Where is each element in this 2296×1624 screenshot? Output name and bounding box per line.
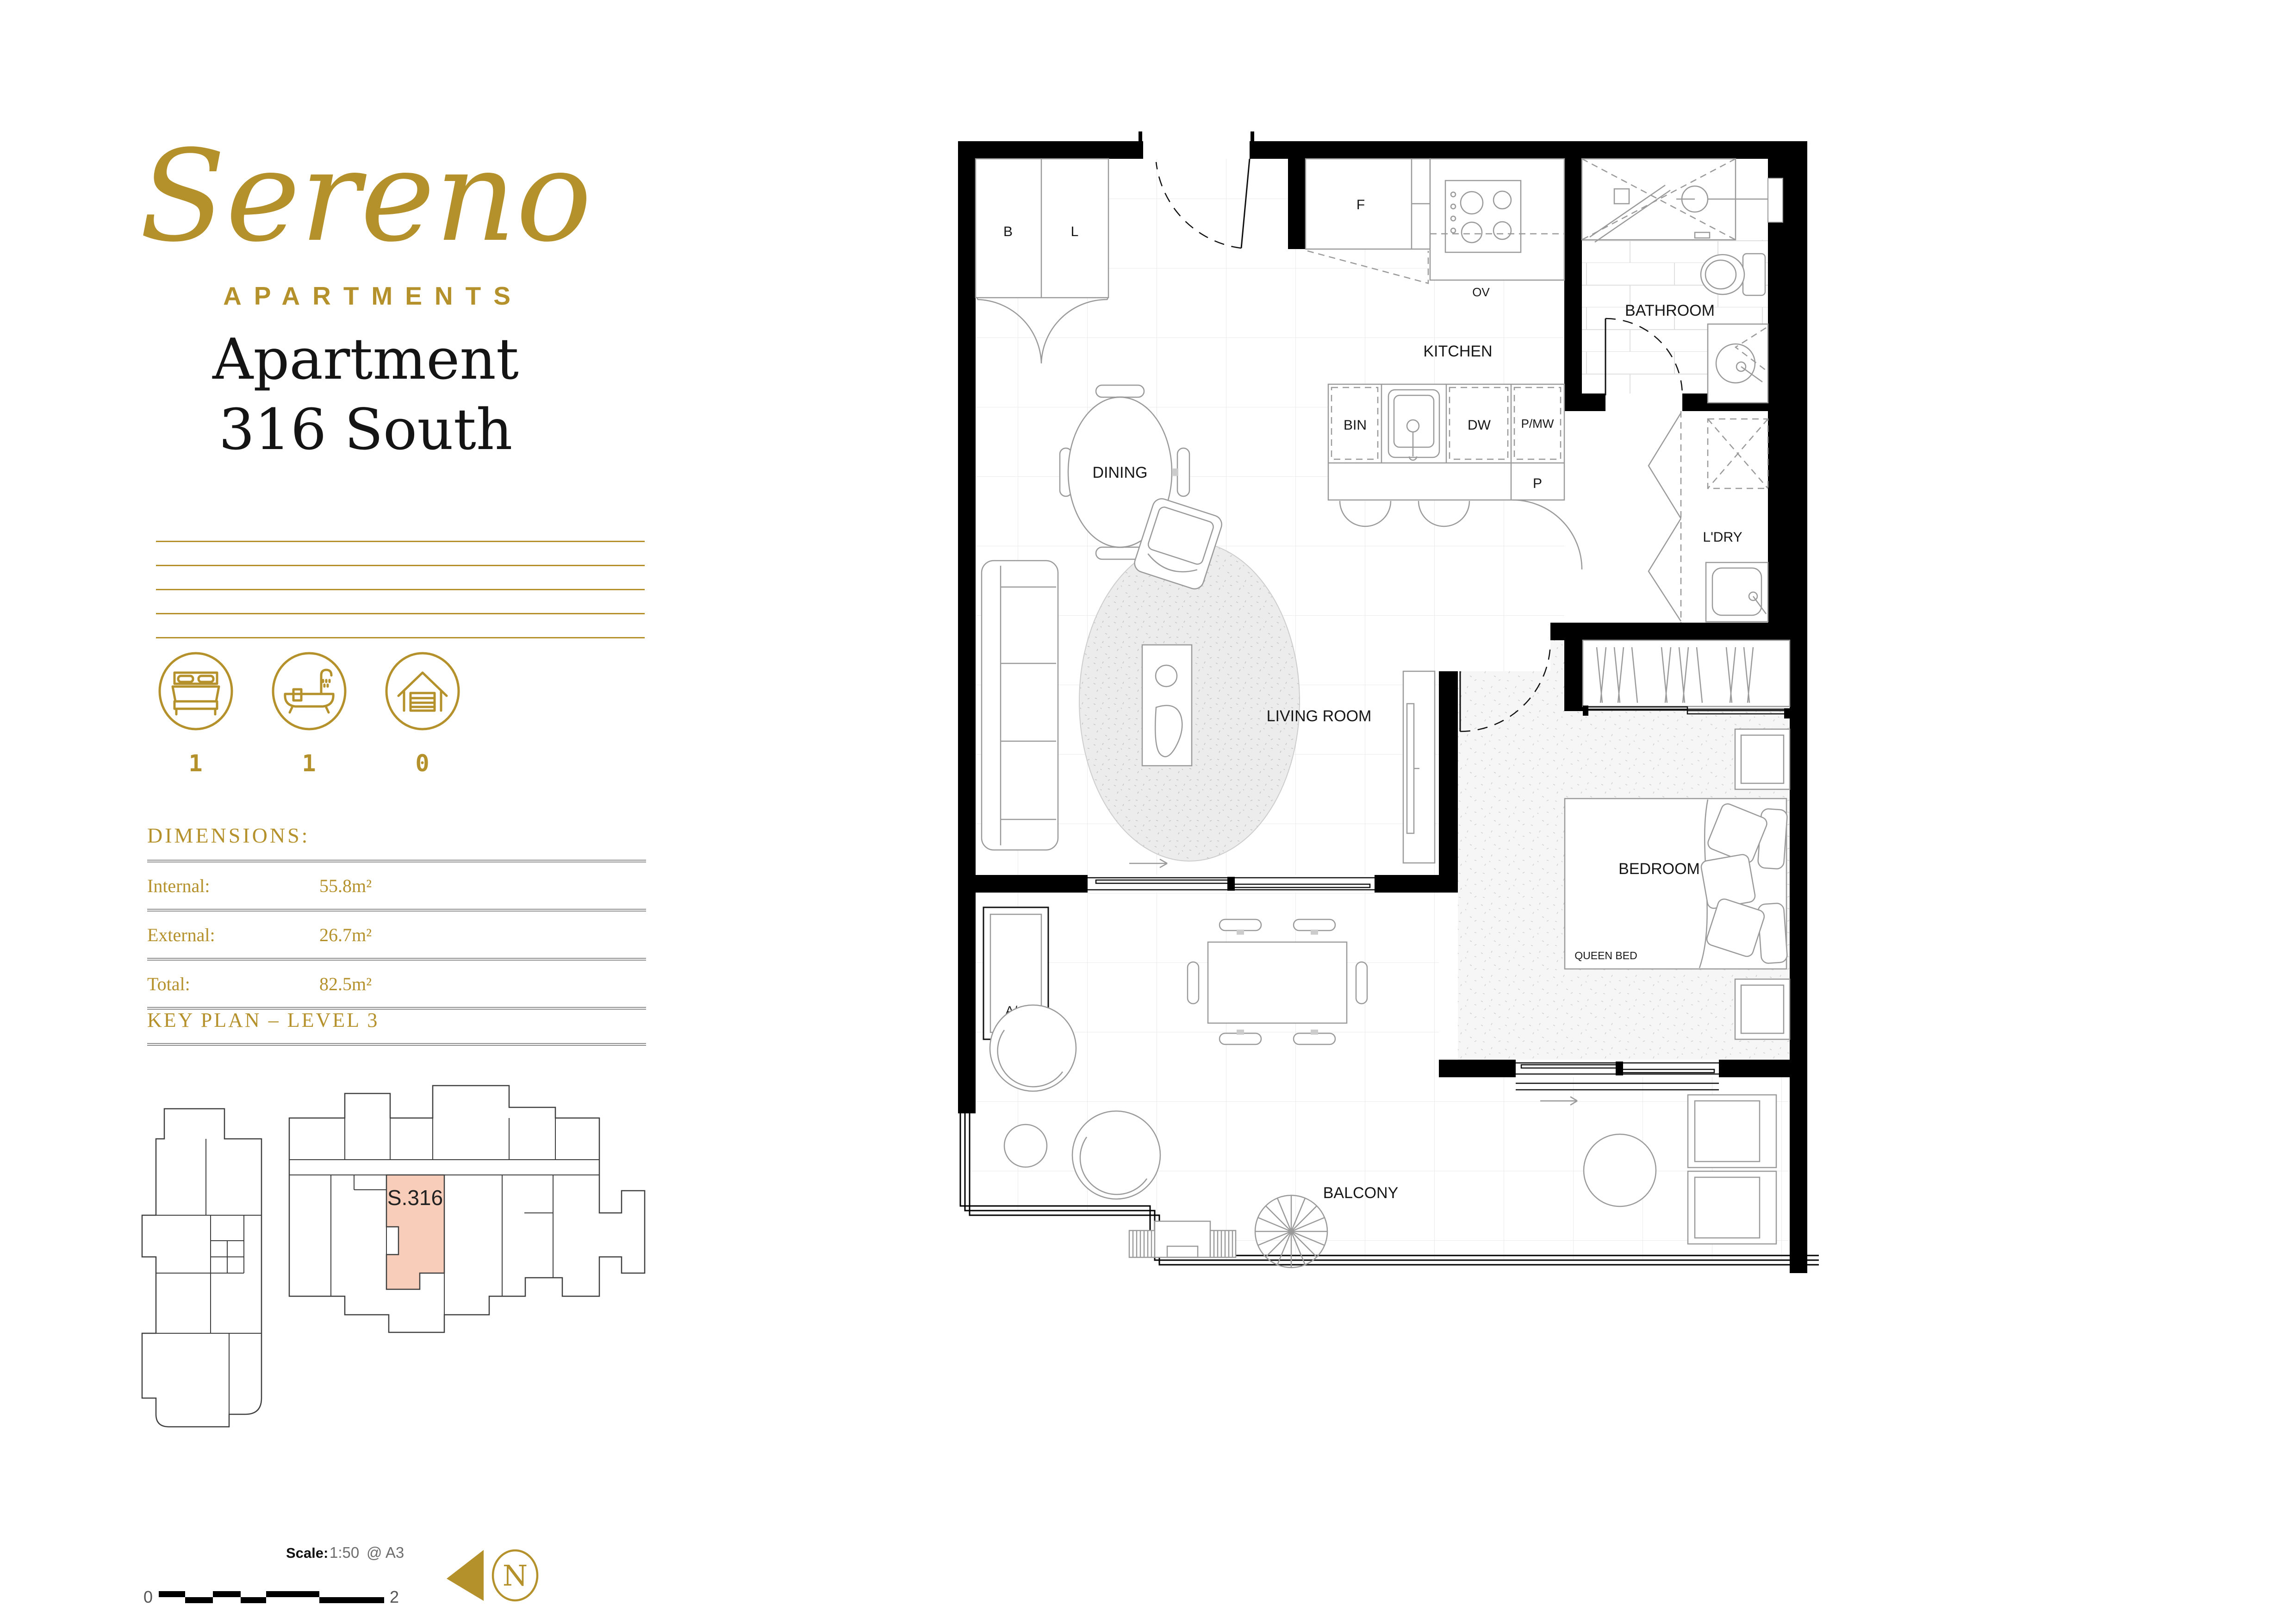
svg-text:0: 0 bbox=[143, 1587, 153, 1606]
outdoor-table bbox=[1584, 1134, 1656, 1206]
keyplan-heading: KEY PLAN – LEVEL 3 bbox=[147, 1008, 646, 1032]
garage-count: 0 bbox=[366, 750, 479, 777]
north-indicator: N bbox=[447, 1550, 537, 1601]
sofa bbox=[982, 561, 1058, 850]
dim-row-internal: Internal: 55.8m² bbox=[147, 862, 646, 909]
kitchen-label: KITCHEN bbox=[1423, 343, 1492, 360]
laundry-tub bbox=[1706, 562, 1768, 622]
dim-row-external: External: 26.7m² bbox=[147, 912, 646, 958]
queen-bed: BEDROOM QUEEN BED bbox=[1565, 799, 1787, 969]
planter bbox=[1688, 1095, 1776, 1168]
svg-text:L'DRY: L'DRY bbox=[1703, 530, 1742, 545]
bathroom-window bbox=[1768, 178, 1783, 222]
bedside-table bbox=[1735, 979, 1790, 1039]
dimensions-table: DIMENSIONS: Internal: 55.8m² External: 2… bbox=[147, 823, 646, 1010]
feature-garages: 0 bbox=[366, 652, 479, 777]
keyplan-heading-block: KEY PLAN – LEVEL 3 bbox=[147, 1008, 646, 1046]
tv-unit bbox=[1403, 671, 1435, 863]
svg-text:DW: DW bbox=[1468, 418, 1491, 433]
floor-plan: B L F OV KITCHEN bbox=[949, 130, 1819, 1380]
dim-row-total: Total: 82.5m² bbox=[147, 961, 646, 1007]
svg-text:2: 2 bbox=[390, 1587, 399, 1606]
brand-logo: Sereno APARTMENTS bbox=[116, 69, 616, 329]
dim-value: 55.8m² bbox=[319, 875, 372, 897]
svg-text:P: P bbox=[1533, 476, 1542, 491]
keyplan-building-east: S.316 bbox=[289, 1086, 645, 1332]
floorplan-sheet: Sereno APARTMENTS Apartment 316 South bbox=[0, 0, 2296, 1624]
brand-wordmark: Sereno bbox=[139, 124, 591, 270]
brand-tagline: APARTMENTS bbox=[223, 281, 523, 310]
page-title: Apartment 316 South bbox=[116, 324, 616, 465]
dim-label: Total: bbox=[147, 973, 319, 995]
svg-text:LIVING ROOM: LIVING ROOM bbox=[1267, 707, 1372, 725]
vanity bbox=[1708, 324, 1768, 403]
svg-text:BEDROOM: BEDROOM bbox=[1618, 860, 1700, 878]
dim-label: External: bbox=[147, 924, 319, 946]
north-letter: N bbox=[503, 1559, 528, 1593]
dim-label: Internal: bbox=[147, 875, 319, 897]
bedroom-count: 1 bbox=[139, 750, 252, 777]
decorative-rules bbox=[156, 541, 645, 638]
plant bbox=[1255, 1195, 1327, 1268]
svg-text:@ A3: @ A3 bbox=[367, 1544, 404, 1561]
dim-value: 26.7m² bbox=[319, 924, 372, 946]
planter bbox=[1688, 1171, 1776, 1244]
scale-and-north: Scale: 1:50 @ A3 0 2 N bbox=[130, 1523, 592, 1620]
dimensions-heading: DIMENSIONS: bbox=[147, 823, 646, 848]
page-title-line2: 316 South bbox=[116, 394, 616, 465]
scale-bar-segments bbox=[159, 1591, 384, 1603]
svg-text:BATHROOM: BATHROOM bbox=[1625, 302, 1715, 319]
svg-text:Scale:: Scale: bbox=[286, 1545, 328, 1561]
garage-icon bbox=[383, 652, 462, 731]
svg-text:P/MW: P/MW bbox=[1521, 417, 1554, 431]
keyplan-unit-label: S.316 bbox=[387, 1186, 443, 1210]
svg-text:QUEEN BED: QUEEN BED bbox=[1574, 949, 1637, 962]
bath-icon bbox=[270, 652, 348, 731]
svg-text:L: L bbox=[1071, 224, 1079, 239]
dim-value: 82.5m² bbox=[319, 973, 372, 995]
svg-text:1:50: 1:50 bbox=[330, 1544, 359, 1561]
wardrobe bbox=[1583, 640, 1790, 718]
north-arrow-icon bbox=[447, 1550, 484, 1601]
svg-text:BIN: BIN bbox=[1344, 418, 1367, 433]
bedside-table bbox=[1735, 729, 1790, 789]
feature-bathrooms: 1 bbox=[252, 652, 366, 777]
svg-text:BALCONY: BALCONY bbox=[1323, 1184, 1399, 1202]
svg-text:B: B bbox=[1003, 224, 1013, 239]
svg-text:DINING: DINING bbox=[1093, 464, 1148, 481]
bed-icon bbox=[156, 652, 235, 731]
coffee-table bbox=[1142, 645, 1192, 766]
cooktop-counter: OV bbox=[1430, 159, 1564, 299]
toilet bbox=[1701, 254, 1765, 295]
page-title-line1: Apartment bbox=[116, 324, 616, 394]
bathroom-count: 1 bbox=[252, 750, 366, 777]
laundry: L'DRY bbox=[1649, 411, 1768, 623]
feature-summary: 1 1 bbox=[139, 652, 639, 777]
feature-bedrooms: 1 bbox=[139, 652, 252, 777]
scale-bar: Scale: 1:50 @ A3 0 2 bbox=[143, 1544, 404, 1606]
svg-text:F: F bbox=[1356, 197, 1365, 212]
keyplan-building-west bbox=[142, 1109, 261, 1427]
key-plan: S.316 bbox=[137, 1074, 660, 1444]
svg-text:OV: OV bbox=[1472, 285, 1490, 299]
